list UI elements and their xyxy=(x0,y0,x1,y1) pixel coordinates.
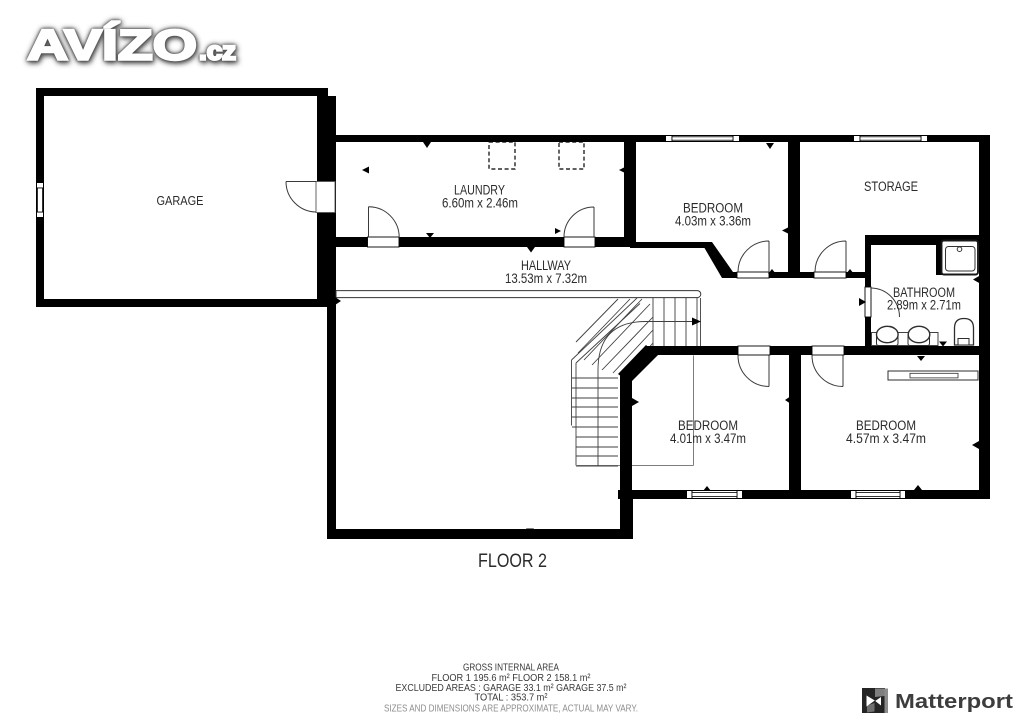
svg-text:GARAGE: GARAGE xyxy=(157,193,204,208)
svg-text:4.57m x 3.47m: 4.57m x 3.47m xyxy=(846,431,926,446)
svg-text:.cz: .cz xyxy=(199,36,236,66)
svg-text:13.53m x 7.32m: 13.53m x 7.32m xyxy=(505,271,587,286)
svg-text:TOTAL : 353.7 m²: TOTAL : 353.7 m² xyxy=(475,693,549,704)
svg-text:6.60m x 2.46m: 6.60m x 2.46m xyxy=(442,196,518,211)
svg-text:FLOOR 2: FLOOR 2 xyxy=(478,551,547,572)
svg-text:GROSS INTERNAL AREA: GROSS INTERNAL AREA xyxy=(463,663,559,674)
svg-text:4.01m x 3.47m: 4.01m x 3.47m xyxy=(670,431,746,446)
svg-text:Matterport: Matterport xyxy=(895,690,1013,713)
svg-text:AVÍZO: AVÍZO xyxy=(27,22,197,70)
svg-text:STORAGE: STORAGE xyxy=(864,179,918,194)
svg-text:SIZES AND DIMENSIONS ARE APPRO: SIZES AND DIMENSIONS ARE APPROXIMATE, AC… xyxy=(384,704,638,715)
svg-text:2.89m x 2.71m: 2.89m x 2.71m xyxy=(887,298,961,313)
svg-text:4.03m x 3.36m: 4.03m x 3.36m xyxy=(675,214,751,229)
